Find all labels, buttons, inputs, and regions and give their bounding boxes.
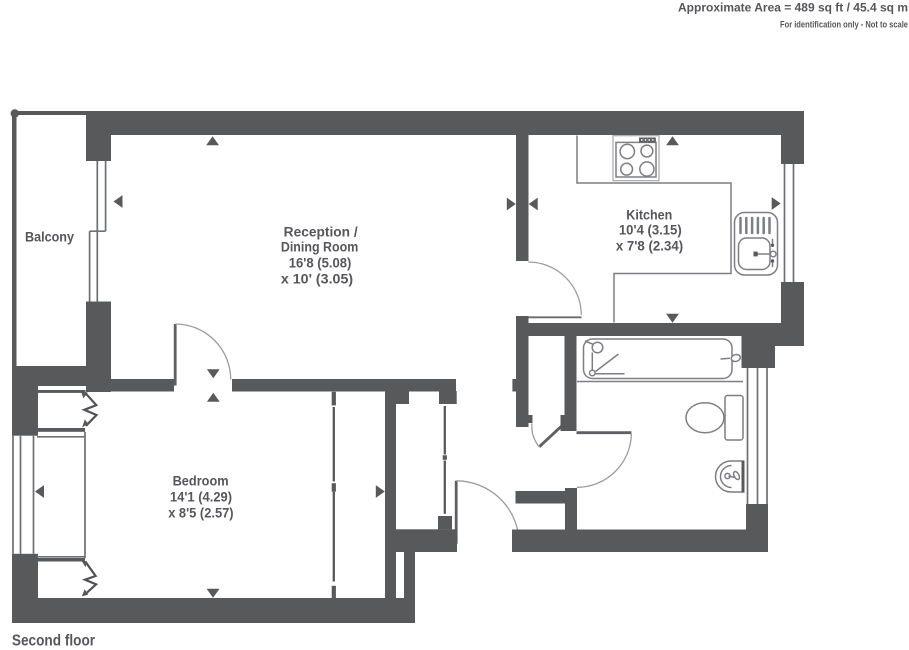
svg-text:14'1 (4.29): 14'1 (4.29) bbox=[170, 490, 232, 505]
svg-text:x 7'8 (2.34): x 7'8 (2.34) bbox=[616, 239, 683, 254]
svg-text:16'8 (5.08): 16'8 (5.08) bbox=[289, 256, 352, 271]
svg-text:x 8'5 (2.57): x 8'5 (2.57) bbox=[168, 506, 233, 521]
svg-text:Approximate Area = 489 sq ft /: Approximate Area = 489 sq ft / 45.4 sq m bbox=[678, 3, 908, 15]
svg-text:10'4 (3.15): 10'4 (3.15) bbox=[619, 223, 682, 238]
svg-text:Kitchen: Kitchen bbox=[626, 207, 672, 222]
svg-text:For identification only - Not: For identification only - Not to scale bbox=[780, 20, 908, 30]
svg-text:Dining Room: Dining Room bbox=[281, 240, 359, 255]
svg-text:Bedroom: Bedroom bbox=[173, 474, 229, 489]
svg-text:Second floor: Second floor bbox=[12, 633, 95, 650]
svg-text:x 10' (3.05): x 10' (3.05) bbox=[281, 272, 353, 287]
svg-text:Reception /: Reception / bbox=[284, 224, 358, 239]
svg-text:Balcony: Balcony bbox=[25, 229, 74, 245]
